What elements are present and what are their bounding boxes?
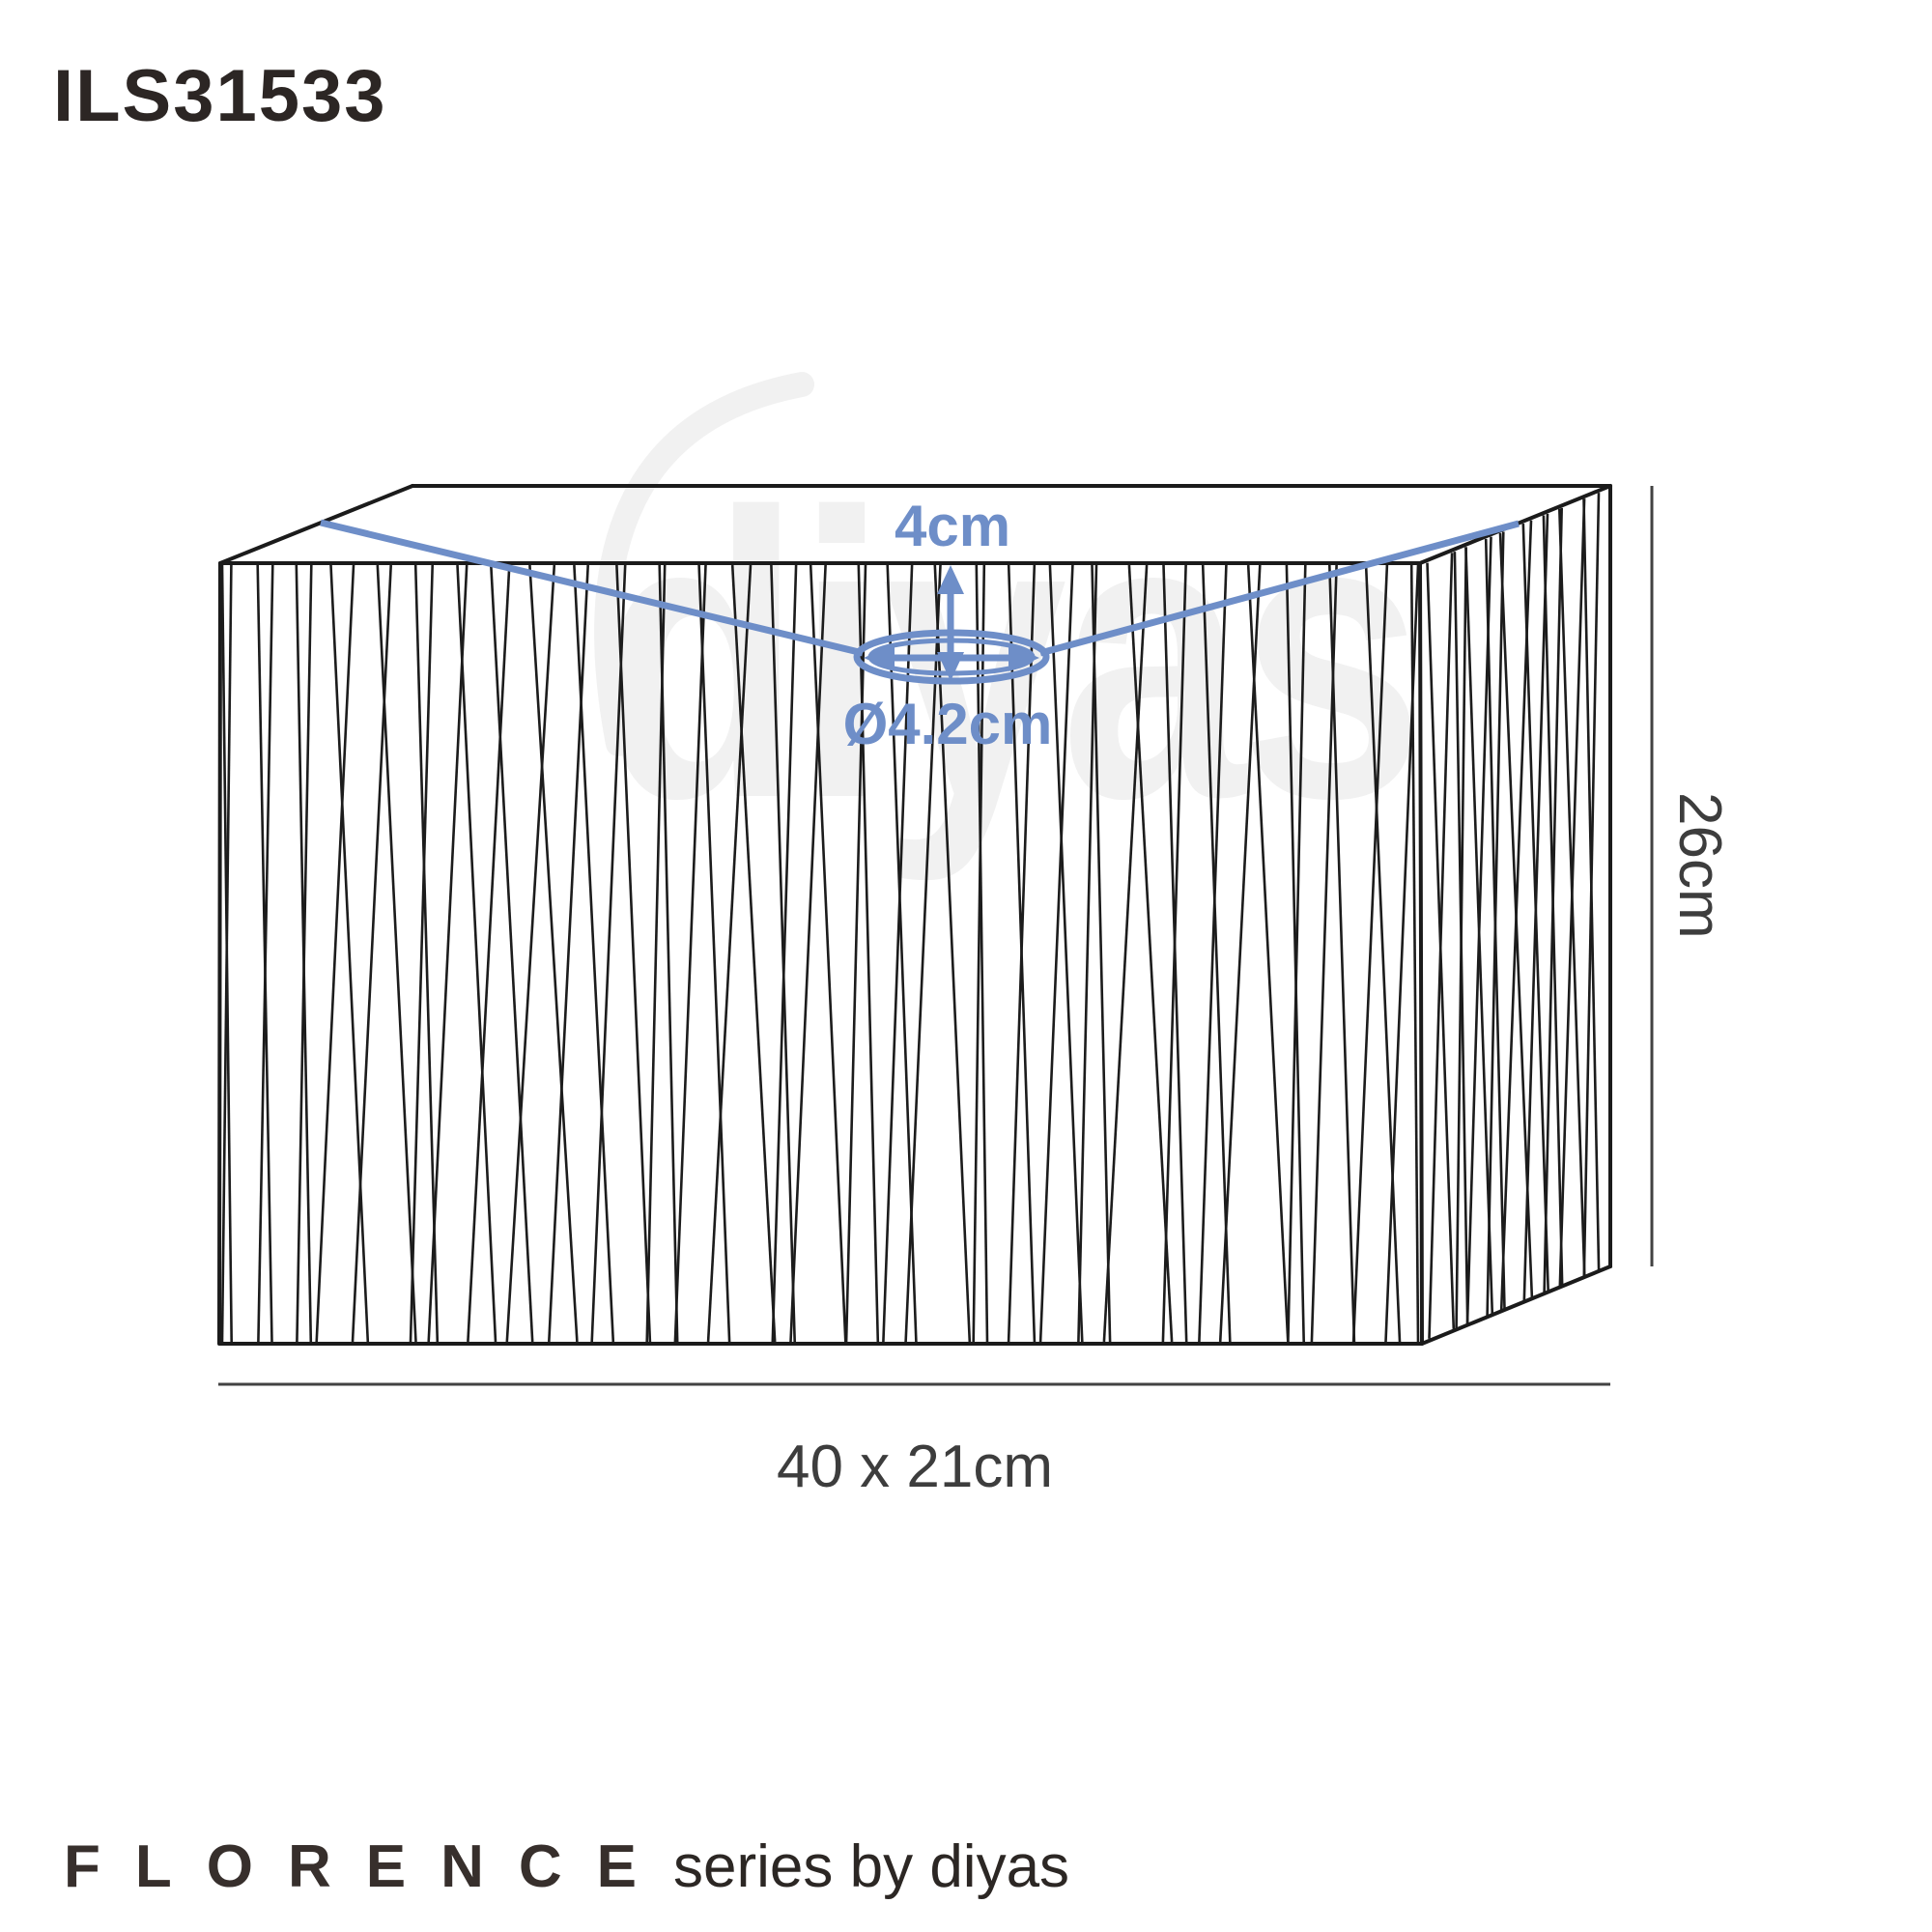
series-name: FLORENCE (64, 1837, 671, 1897)
fitting-pointer-left (321, 523, 863, 653)
fitting-pointer-right (1040, 524, 1519, 653)
shade-outline (219, 486, 1610, 1344)
lampshade-diagram (0, 0, 1932, 1932)
brand-footer: FLORENCE series by diyas (64, 1837, 1069, 1897)
pleat-lines (222, 493, 1599, 1342)
height-dimension-label: 26cm (1669, 792, 1729, 939)
drop-dimension-label: 4cm (869, 497, 1036, 555)
series-byline: series by diyas (673, 1837, 1069, 1897)
base-dimension-label: 40 x 21cm (625, 1437, 1205, 1497)
ring-diameter-label: Ø4.2cm (803, 696, 1093, 753)
product-code: ILS31533 (53, 54, 387, 138)
top-left-slant-edge (220, 486, 412, 563)
right-bottom-edge (1422, 1266, 1610, 1344)
